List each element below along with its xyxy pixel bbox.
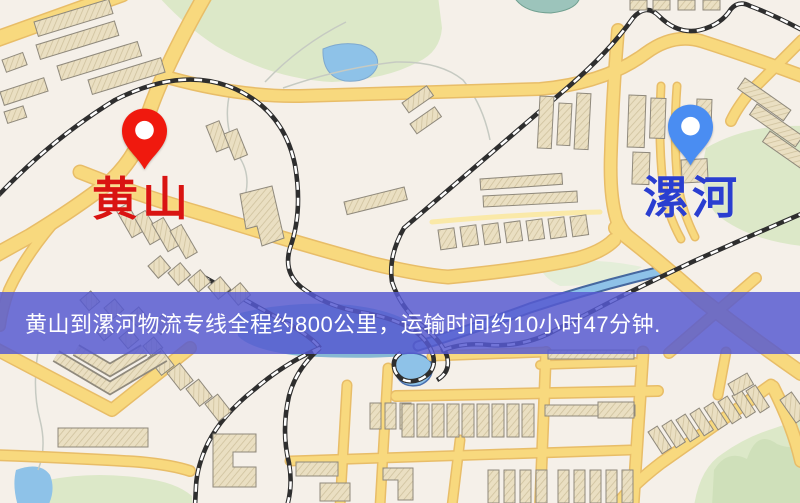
map-canvas[interactable] — [0, 0, 800, 503]
origin-label: 黄山 — [92, 176, 192, 222]
origin-pin[interactable] — [121, 107, 169, 171]
map-view[interactable]: 黄山 漯河 黄山到漯河物流专线全程约800公里，运输时间约10小时47分钟. — [0, 0, 800, 503]
route-info-banner: 黄山到漯河物流专线全程约800公里，运输时间约10小时47分钟. — [0, 292, 800, 354]
destination-pin[interactable] — [667, 103, 715, 167]
red-location-pin-icon — [121, 107, 168, 171]
route-info-text: 黄山到漯河物流专线全程约800公里，运输时间约10小时47分钟. — [25, 307, 661, 339]
blue-location-pin-icon — [667, 103, 714, 167]
destination-label: 漯河 — [643, 175, 741, 220]
